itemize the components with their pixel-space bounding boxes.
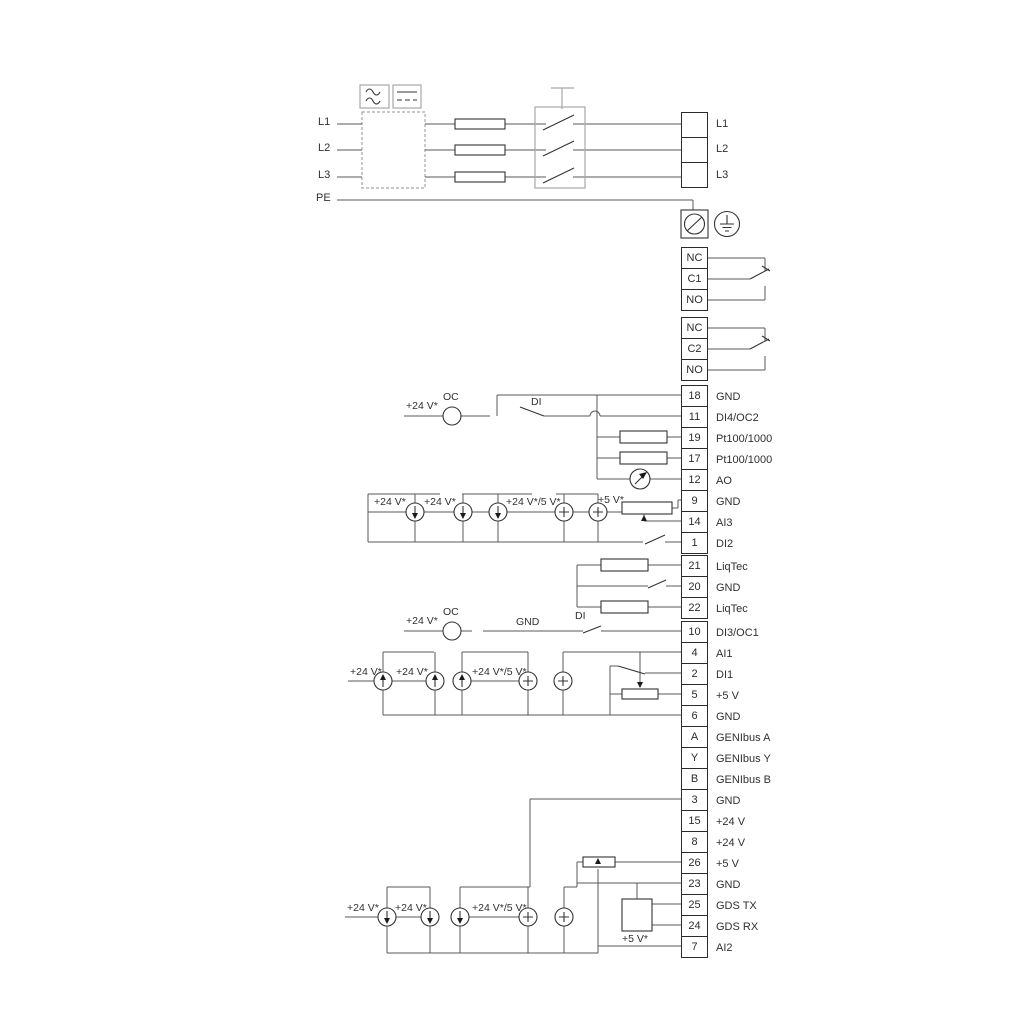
annotation-24v: +24 V* <box>424 496 456 508</box>
annotation-24v-5v: +24 V*/5 V* <box>472 902 527 914</box>
out-label-l2: L2 <box>716 143 728 155</box>
terminal-cell: 3 <box>682 790 707 811</box>
terminal-label: GND <box>716 577 748 598</box>
terminal-cell: 4 <box>682 643 707 664</box>
annotation-5v: +5 V* <box>622 933 648 945</box>
annotation-24v: +24 V* <box>347 902 379 914</box>
terminal-label: LiqTec <box>716 598 748 619</box>
liqtec-sensor-22 <box>601 601 648 613</box>
terminal-cell: 23 <box>682 874 707 895</box>
terminal-label: GND <box>716 874 758 895</box>
terminal-cell: 9 <box>682 491 707 512</box>
io1-terminal-block: 18 11 19 17 12 9 14 1 <box>681 385 708 554</box>
io1-labels: GND DI4/OC2 Pt100/1000 Pt100/1000 AO GND… <box>716 386 772 554</box>
terminal-cell: Y <box>682 748 707 769</box>
terminal-cell: 19 <box>682 428 707 449</box>
power-terminal-block <box>681 112 708 188</box>
ac-wave-icon <box>366 98 380 104</box>
io1-wiring <box>368 395 681 544</box>
di3-switch-blade <box>583 626 601 633</box>
di1-switch-blade <box>618 666 645 674</box>
liqtec-labels: LiqTec GND LiqTec <box>716 556 748 619</box>
terminal-cell: 15 <box>682 811 707 832</box>
ai1-potentiometer <box>622 689 658 699</box>
annotation-gnd: GND <box>516 616 539 628</box>
io3-labels: GND +24 V +24 V +5 V GND GDS TX GDS RX A… <box>716 790 758 958</box>
schematic-lines <box>0 0 1024 1024</box>
terminal-label: Pt100/1000 <box>716 428 772 449</box>
terminal-cell: 11 <box>682 407 707 428</box>
terminal-cell <box>682 113 707 138</box>
line-label-pe: PE <box>316 192 331 204</box>
di4-switch-blade <box>520 407 544 416</box>
pe-wire <box>337 200 693 210</box>
relay2-wires <box>708 328 765 370</box>
switch-blades <box>543 115 574 183</box>
terminal-label: AI1 <box>716 643 771 664</box>
relay2-terminal-block: NC C2 NO <box>681 317 708 381</box>
relay2-blade <box>750 336 770 349</box>
relay1-wires <box>708 258 765 300</box>
oc2-circle <box>443 407 461 425</box>
terminal-cell: NO <box>682 360 707 380</box>
relay1-blade <box>750 266 770 279</box>
fuse-l1 <box>455 119 505 129</box>
oc1-circle <box>443 622 461 640</box>
ai3-potentiometer <box>622 502 672 514</box>
terminal-cell: 1 <box>682 533 707 553</box>
terminal-label: LiqTec <box>716 556 748 577</box>
annotation-24v: +24 V* <box>396 666 428 678</box>
terminal-label: GND <box>716 706 771 727</box>
wiper-arrow-down <box>637 682 643 688</box>
annotation-24v: +24 V* <box>395 902 427 914</box>
dc-symbol-box <box>393 85 421 108</box>
terminal-cell: 21 <box>682 556 707 577</box>
terminal-label: GDS TX <box>716 895 758 916</box>
terminal-label: GENIbus Y <box>716 748 771 769</box>
terminal-cell: 2 <box>682 664 707 685</box>
terminal-cell <box>682 138 707 163</box>
io2-labels: DI3/OC1 AI1 DI1 +5 V GND GENIbus A GENIb… <box>716 622 771 790</box>
terminal-label: GENIbus B <box>716 769 771 790</box>
terminal-cell: C1 <box>682 269 707 290</box>
fuse-l3 <box>455 172 505 182</box>
out-label-l1: L1 <box>716 118 728 130</box>
terminal-label: DI2 <box>716 533 772 554</box>
terminal-label: Pt100/1000 <box>716 449 772 470</box>
terminal-label: AI3 <box>716 512 772 533</box>
terminal-cell: 24 <box>682 916 707 937</box>
wiring-diagram: L1 L2 L3 PE L1 L2 L3 NC C1 NO NC C2 NO 1… <box>0 0 1024 1024</box>
annotation-oc: OC <box>443 606 459 618</box>
liqtec-wiring <box>577 559 681 613</box>
terminal-cell: 25 <box>682 895 707 916</box>
terminal-label: DI4/OC2 <box>716 407 772 428</box>
switch-actuator <box>551 88 574 109</box>
relay2-contact <box>708 328 770 370</box>
out-label-l3: L3 <box>716 169 728 181</box>
terminal-label: GND <box>716 491 772 512</box>
terminal-cell: 12 <box>682 470 707 491</box>
terminal-cell: 6 <box>682 706 707 727</box>
liqtec-switch-blade <box>648 580 666 588</box>
io3-terminal-block: 3 15 8 26 23 25 24 7 <box>681 789 708 958</box>
line-label-l3: L3 <box>318 169 330 181</box>
wiper-arrow-up <box>641 515 647 521</box>
terminal-cell: 18 <box>682 386 707 407</box>
annotation-oc: OC <box>443 391 459 403</box>
terminal-label: AO <box>716 470 772 491</box>
ac-wave-icon <box>366 89 380 95</box>
terminal-label: GENIbus A <box>716 727 771 748</box>
filter-box <box>362 112 425 188</box>
earth-glyph <box>720 215 734 231</box>
terminal-label: DI3/OC1 <box>716 622 771 643</box>
fuse-l2 <box>455 145 505 155</box>
pt100-resistor-17 <box>620 452 667 464</box>
terminal-cell: NC <box>682 248 707 269</box>
terminal-label: GDS RX <box>716 916 758 937</box>
liqtec-terminal-block: 21 20 22 <box>681 555 708 619</box>
pt100-resistor-19 <box>620 431 667 443</box>
annotation-24v: +24 V* <box>406 615 438 627</box>
annotation-24v-5v: +24 V*/5 V* <box>472 666 527 678</box>
terminal-label: DI1 <box>716 664 771 685</box>
line-label-l2: L2 <box>318 142 330 154</box>
ac-symbol-box <box>360 85 389 108</box>
wire-hop <box>590 411 600 416</box>
terminal-cell: 26 <box>682 853 707 874</box>
liqtec-sensor-21 <box>601 559 648 571</box>
terminal-cell: 7 <box>682 937 707 957</box>
annotation-di: DI <box>531 396 542 408</box>
terminal-cell: NC <box>682 318 707 339</box>
terminal-label: +24 V <box>716 832 758 853</box>
io2-terminal-block: 10 4 2 5 6 A Y B <box>681 621 708 790</box>
annotation-24v: +24 V* <box>350 666 382 678</box>
terminal-cell <box>682 163 707 187</box>
annotation-24v: +24 V* <box>406 400 438 412</box>
terminal-label: GND <box>716 386 772 407</box>
relay1-terminal-block: NC C1 NO <box>681 247 708 311</box>
terminal-cell: 8 <box>682 832 707 853</box>
terminal-label: +24 V <box>716 811 758 832</box>
terminal-cell: B <box>682 769 707 789</box>
terminal-cell: NO <box>682 290 707 310</box>
dc-symbol-icon <box>397 92 417 100</box>
terminal-cell: 17 <box>682 449 707 470</box>
terminal-cell: 22 <box>682 598 707 618</box>
di2-switch-blade <box>645 535 665 544</box>
power-section <box>337 85 740 238</box>
annotation-24v-5v: +24 V*/5 V* <box>506 496 561 508</box>
line-label-l1: L1 <box>318 116 330 128</box>
terminal-cell: 20 <box>682 577 707 598</box>
terminal-cell: 10 <box>682 622 707 643</box>
relay1-contact <box>708 258 770 300</box>
terminal-cell: C2 <box>682 339 707 360</box>
io3-wiring <box>345 799 681 953</box>
annotation-24v: +24 V* <box>374 496 406 508</box>
terminal-label: +5 V <box>716 853 758 874</box>
terminal-cell: A <box>682 727 707 748</box>
annotation-5v: +5 V* <box>598 494 624 506</box>
terminal-label: AI2 <box>716 937 758 958</box>
terminal-cell: 5 <box>682 685 707 706</box>
terminal-label: GND <box>716 790 758 811</box>
terminal-label: +5 V <box>716 685 771 706</box>
terminal-cell: 14 <box>682 512 707 533</box>
annotation-di: DI <box>575 610 586 622</box>
gds-sensor-box <box>622 899 652 931</box>
